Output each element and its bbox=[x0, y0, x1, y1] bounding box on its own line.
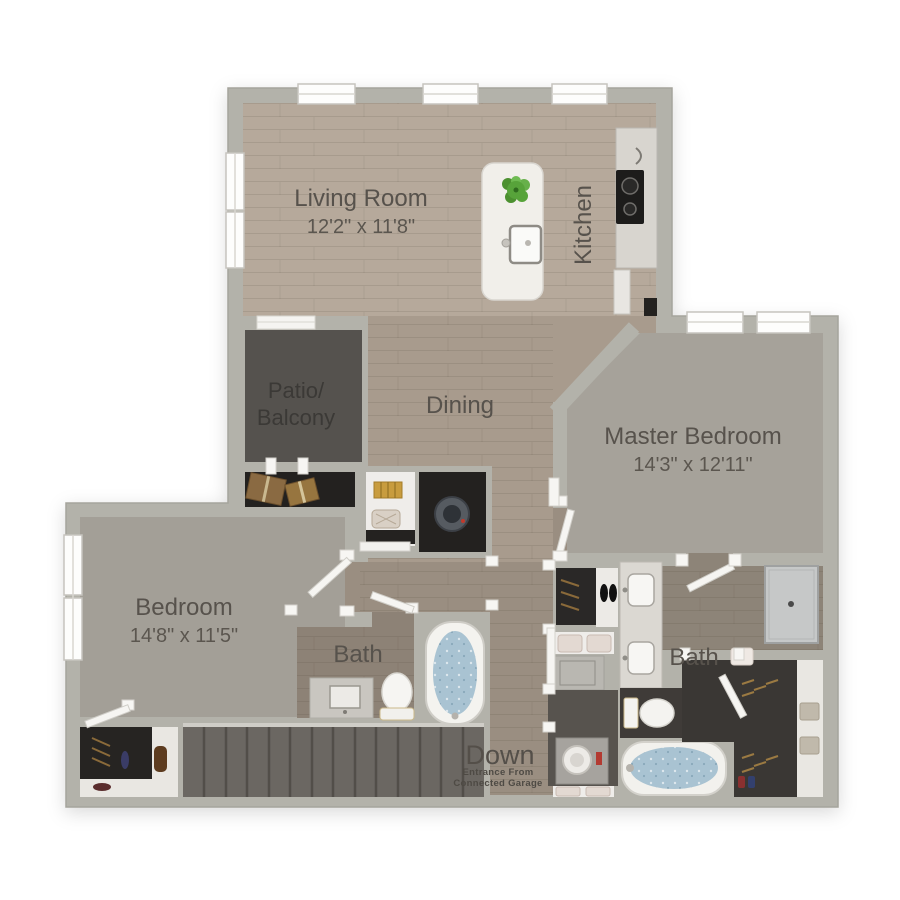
master-faucet-1 bbox=[623, 588, 628, 593]
main-bath-sink bbox=[330, 686, 360, 708]
shoe-left bbox=[600, 584, 608, 602]
master-bath-jamb-1 bbox=[676, 554, 688, 566]
bedroom-door-gap-floor bbox=[345, 562, 360, 612]
master-tub-water-texture bbox=[630, 747, 718, 789]
main-bath bbox=[297, 612, 484, 724]
kitchen-label: Kitchen bbox=[570, 185, 597, 265]
patio-label-line2: Balcony bbox=[257, 405, 335, 430]
master-bath-jamb-2 bbox=[729, 554, 741, 566]
hall-jamb-1 bbox=[486, 556, 498, 566]
water-heater-inner bbox=[443, 505, 461, 523]
main-bath-toilet-tank bbox=[380, 708, 414, 720]
water-heater-valve bbox=[461, 519, 465, 523]
laundry-open-door bbox=[547, 628, 555, 686]
master-faucet-2 bbox=[623, 656, 628, 661]
entrance-note-line1: Entrance From bbox=[463, 767, 534, 778]
entrance-note-line2: Connected Garage bbox=[453, 778, 542, 789]
shoe-box-1 bbox=[800, 703, 819, 720]
bedroom-closet-dark bbox=[80, 727, 152, 779]
washer-detergent bbox=[596, 752, 602, 765]
dining-label: Dining bbox=[426, 392, 494, 419]
master-tub-faucet bbox=[626, 764, 634, 772]
laundry-jamb-3 bbox=[543, 684, 555, 694]
towel-1 bbox=[558, 635, 582, 652]
laundry-jamb-4 bbox=[543, 722, 555, 732]
closet-shoes bbox=[93, 783, 111, 791]
patio-storage-jamb-2 bbox=[298, 458, 308, 474]
master-hall-open-door bbox=[549, 478, 559, 506]
laundry-towel-1 bbox=[556, 787, 580, 796]
laundry-utility-closets bbox=[360, 472, 486, 552]
master-toilet-tank bbox=[624, 698, 638, 728]
laundry-jamb-1 bbox=[543, 560, 555, 570]
counter-end-dark bbox=[644, 298, 657, 316]
main-bath-faucet bbox=[343, 710, 347, 714]
closet-garment bbox=[154, 746, 167, 772]
master-sink-1 bbox=[628, 574, 654, 606]
shoe-box-2 bbox=[800, 737, 819, 754]
bath-door-jamb-2 bbox=[285, 605, 297, 615]
stairs-down-label: Down bbox=[465, 740, 534, 770]
bedroom-door-jamb-2 bbox=[340, 606, 354, 616]
floorplan-canvas: Living Room 12'2" x 11'8" Kitchen Dining… bbox=[0, 0, 900, 900]
closet-item bbox=[121, 751, 129, 769]
master-bath-door-gap bbox=[686, 553, 733, 566]
living-room-label: Living Room bbox=[294, 185, 427, 212]
bath-door-gap-floor bbox=[372, 612, 414, 627]
shower-drain bbox=[788, 601, 794, 607]
towel-2 bbox=[587, 635, 611, 652]
main-tub-faucet bbox=[452, 713, 459, 720]
main-tub-water-texture bbox=[433, 631, 477, 715]
shoe-right bbox=[609, 584, 617, 602]
stairs-top-rail bbox=[183, 723, 484, 727]
bedroom-dims: 14'8" x 11'5" bbox=[130, 625, 238, 647]
island-faucet bbox=[502, 239, 510, 247]
main-bath-toilet-bowl bbox=[382, 673, 412, 711]
closet-item-blue bbox=[748, 776, 755, 788]
patio-label-line1: Patio/ bbox=[268, 378, 325, 403]
master-sink-2 bbox=[628, 642, 654, 674]
master-bedroom-label: Master Bedroom bbox=[604, 423, 781, 450]
bath-main-label: Bath bbox=[333, 641, 382, 668]
floorplan-page: Living Room 12'2" x 11'8" Kitchen Dining… bbox=[0, 0, 900, 900]
hall-jamb-2 bbox=[486, 600, 498, 610]
washer-drum-inner bbox=[570, 753, 584, 767]
island-drain bbox=[525, 240, 531, 246]
closet-item-red bbox=[738, 776, 745, 788]
bedroom-closet bbox=[80, 727, 178, 797]
laundry-towel-2 bbox=[586, 787, 610, 796]
burner-1 bbox=[622, 178, 638, 194]
linen-closet-door bbox=[360, 542, 410, 551]
refrigerator bbox=[614, 270, 630, 314]
hall-front-bath-planks bbox=[360, 562, 490, 612]
walkin-jamb-2 bbox=[734, 648, 744, 660]
bath-master-label: Bath bbox=[669, 644, 718, 671]
living-room-dims: 12'2" x 11'8" bbox=[307, 216, 415, 238]
master-toilet-bowl bbox=[640, 699, 674, 727]
master-bath bbox=[620, 553, 823, 797]
island-plant-icon bbox=[502, 176, 530, 203]
master-bedroom-dims: 14'3" x 12'11" bbox=[633, 454, 752, 476]
stairs bbox=[183, 723, 484, 797]
bedroom-label: Bedroom bbox=[135, 594, 232, 621]
patio-storage-jamb-1 bbox=[266, 458, 276, 474]
walkin-closet-floor bbox=[797, 660, 823, 797]
burner-2 bbox=[624, 203, 636, 215]
